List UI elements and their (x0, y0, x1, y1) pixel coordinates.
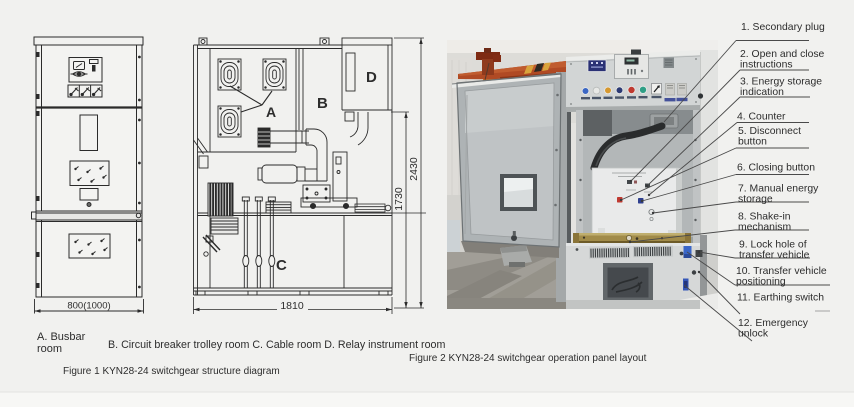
svg-text:2. Open and close: 2. Open and close (740, 49, 825, 60)
svg-text:4. Counter: 4. Counter (737, 112, 786, 123)
svg-text:9. Lock hole of: 9. Lock hole of (739, 240, 807, 251)
svg-text:800(1000): 800(1000) (67, 301, 110, 312)
svg-text:1. Secondary plug: 1. Secondary plug (741, 22, 825, 33)
svg-text:Figure 1 KYN28-24 switchgear s: Figure 1 KYN28-24 switchgear structure d… (63, 366, 280, 377)
svg-text:2430: 2430 (408, 157, 420, 181)
svg-text:mechanism: mechanism (738, 222, 791, 233)
svg-text:A: A (266, 104, 276, 120)
svg-text:8. Shake-in: 8. Shake-in (738, 212, 791, 223)
svg-text:10. Transfer vehicle: 10. Transfer vehicle (736, 266, 827, 277)
svg-text:7. Manual energy: 7. Manual energy (738, 184, 819, 195)
svg-text:3. Energy storage: 3. Energy storage (740, 77, 822, 88)
svg-text:indication: indication (740, 87, 784, 98)
svg-text:11. Earthing switch: 11. Earthing switch (737, 293, 824, 304)
svg-text:6. Closing button: 6. Closing button (737, 163, 815, 174)
svg-text:A. Busbar: A. Busbar (37, 331, 86, 343)
svg-text:1730: 1730 (393, 187, 405, 211)
svg-text:instructions: instructions (740, 60, 793, 71)
svg-text:B. Circuit breaker trolley roo: B. Circuit breaker trolley room C. Cable… (108, 339, 445, 351)
svg-text:12. Emergency: 12. Emergency (738, 318, 809, 329)
svg-text:5. Disconnect: 5. Disconnect (738, 126, 801, 137)
svg-text:unlock: unlock (738, 329, 769, 340)
svg-text:positioning: positioning (736, 277, 786, 288)
svg-text:D: D (366, 69, 377, 86)
svg-text:1810: 1810 (280, 300, 304, 312)
svg-text:storage: storage (738, 194, 773, 205)
svg-text:C: C (276, 257, 287, 274)
svg-text:button: button (738, 137, 767, 148)
svg-text:Figure 2 KYN28-24 switchgear o: Figure 2 KYN28-24 switchgear operation p… (409, 353, 647, 364)
svg-text:room: room (37, 343, 62, 355)
svg-text:transfer vehicle: transfer vehicle (739, 250, 810, 261)
svg-text:B: B (317, 95, 328, 112)
